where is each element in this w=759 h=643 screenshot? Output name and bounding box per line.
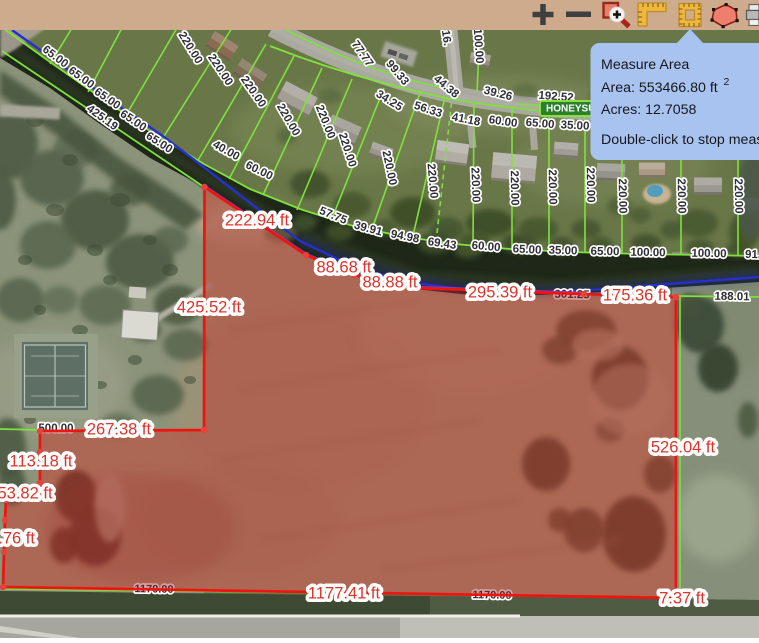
svg-text:88.88 ft: 88.88 ft	[362, 274, 417, 292]
svg-text:65.00: 65.00	[591, 246, 620, 259]
svg-text:60.00: 60.00	[471, 240, 501, 254]
svg-text:35.00: 35.00	[560, 119, 589, 132]
svg-text:100.00: 100.00	[630, 247, 665, 260]
svg-text:220.00: 220.00	[675, 178, 688, 213]
svg-text:65.00: 65.00	[525, 117, 555, 131]
svg-text:Double-click to stop meas: Double-click to stop meas	[601, 132, 759, 148]
svg-text:53.82 ft: 53.82 ft	[0, 485, 53, 503]
svg-text:Area: 553466.80 ft: Area: 553466.80 ft	[601, 80, 718, 96]
svg-text:1.76 ft: 1.76 ft	[0, 530, 35, 548]
svg-text:175.36 ft: 175.36 ft	[603, 287, 668, 305]
svg-text:425.52 ft: 425.52 ft	[177, 299, 242, 317]
svg-text:526.04 ft: 526.04 ft	[651, 439, 716, 457]
svg-text:1177.41 ft: 1177.41 ft	[308, 585, 381, 603]
svg-text:100.00: 100.00	[691, 248, 726, 261]
svg-text:220.00: 220.00	[732, 178, 745, 213]
svg-text:188.01: 188.01	[714, 291, 750, 304]
svg-text:220.00: 220.00	[584, 167, 597, 202]
svg-text:Acres: 12.7058: Acres: 12.7058	[601, 102, 697, 118]
svg-text:222.94 ft: 222.94 ft	[225, 212, 290, 230]
svg-text:295.39 ft: 295.39 ft	[468, 284, 533, 302]
svg-text:HONEYSU: HONEYSU	[546, 104, 595, 115]
svg-text:35.00: 35.00	[548, 245, 577, 258]
svg-text:65.00: 65.00	[512, 243, 541, 256]
svg-text:220.00: 220.00	[546, 169, 559, 204]
svg-text:267.38 ft: 267.38 ft	[87, 421, 152, 439]
svg-text:91.: 91.	[745, 249, 759, 261]
svg-text:113.18 ft: 113.18 ft	[10, 453, 73, 471]
svg-text:220.00: 220.00	[468, 167, 481, 203]
svg-text:7.37 ft: 7.37 ft	[659, 590, 705, 608]
svg-text:220.00: 220.00	[616, 178, 629, 213]
svg-text:2: 2	[724, 76, 730, 88]
svg-text:100.00: 100.00	[471, 28, 485, 64]
svg-text:16.: 16.	[439, 29, 453, 47]
svg-text:Measure Area: Measure Area	[601, 57, 689, 73]
svg-text:220.00: 220.00	[508, 170, 521, 205]
